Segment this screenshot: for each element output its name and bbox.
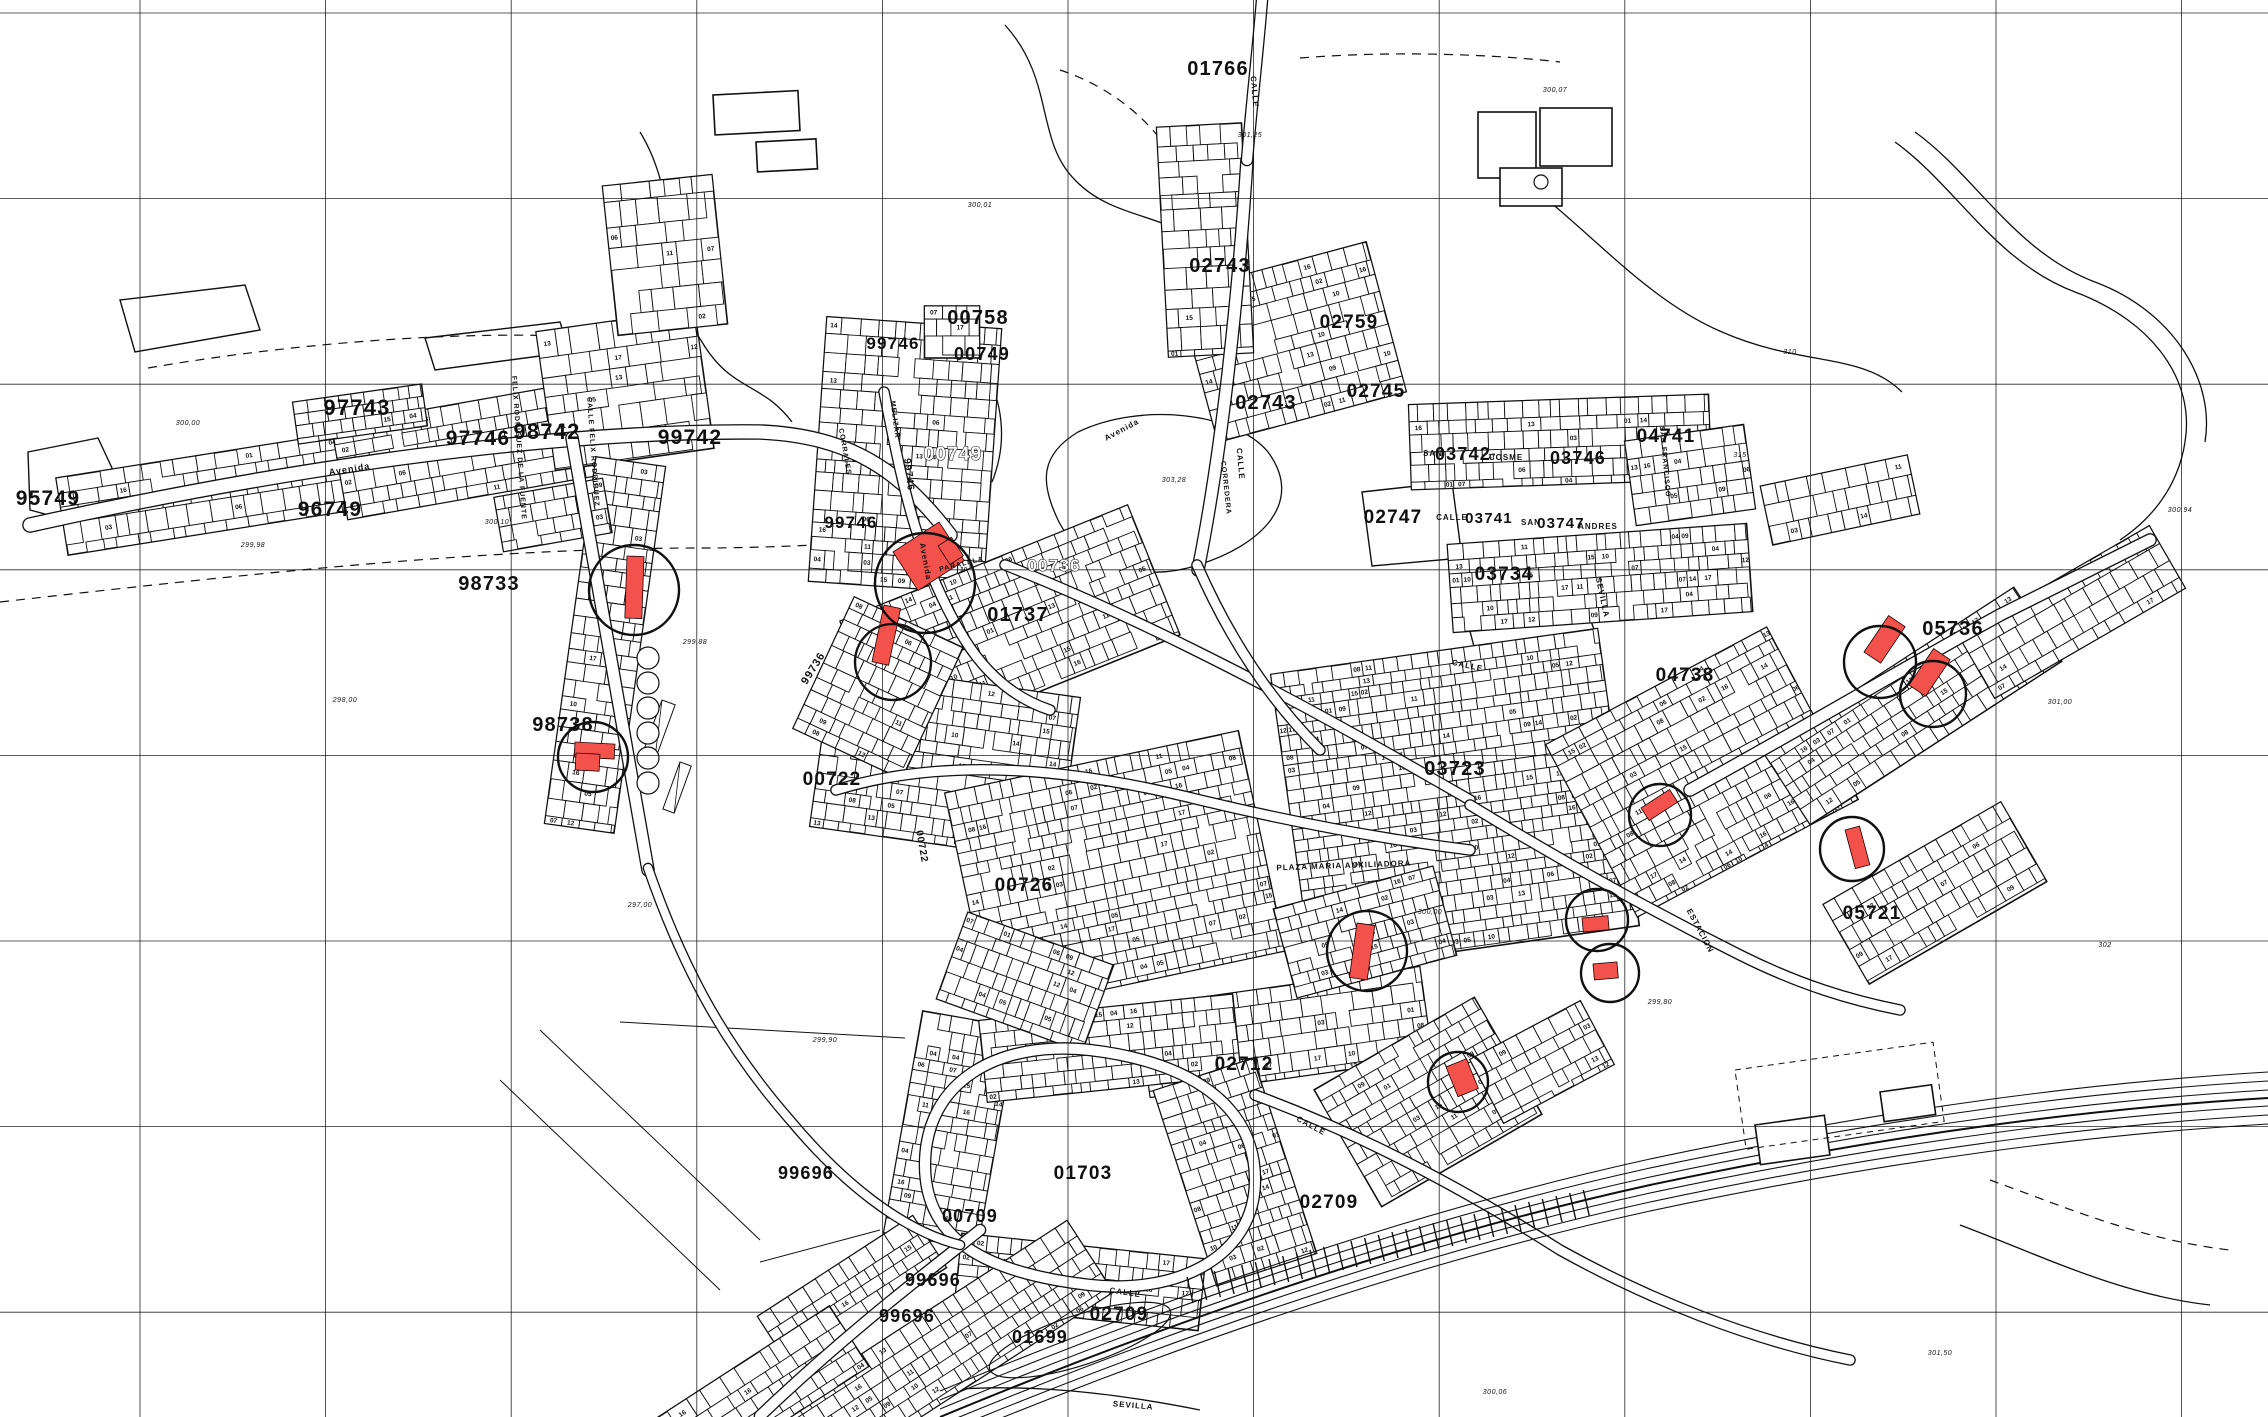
parcel-number: 12 [1439,811,1448,819]
street-label: COSME [1489,453,1523,462]
spot-elevation: 302 [2098,942,2111,949]
block-number-label: 03742 [1435,444,1491,464]
parcel-number: 15 [1587,554,1595,562]
block-number-label: 02712 [1215,1054,1274,1075]
block-number-label: 02743 [1189,255,1251,277]
parcel-number: 02 [989,1093,997,1101]
parcel-number: 04 [1712,545,1720,553]
parcel-number: 12 [1126,1022,1134,1030]
parcel-number: 11 [666,250,674,258]
parcel-number: 17 [1500,618,1508,626]
parcel-number: 04 [1503,877,1512,885]
parcel-number: 14 [1689,576,1697,584]
parcel-number: 13 [915,453,923,461]
parcel-number: 09 [1352,784,1361,792]
block-number-label: 04741 [1637,426,1696,447]
highlighted-parcel [625,556,644,619]
parcel-number: 09 [1718,486,1727,494]
block-number-label: 99696 [879,1306,935,1326]
parcel-number: 10 [1463,576,1471,584]
parcel-number: 12 [1279,727,1288,735]
parcel-number: 12 [1364,810,1373,818]
parcel-number: 04 [1322,803,1331,811]
parcel-number: 13 [1630,464,1639,472]
block-number-label: 02745 [1347,381,1406,402]
parcel-number: 03 [1288,767,1297,775]
parcel-number: 06 [1518,467,1526,474]
block-number-label: 96749 [298,498,362,521]
spot-elevation: 303,28 [1162,477,1186,484]
parcel-number: 17 [1561,585,1569,593]
block-number-label: 00749 [954,344,1010,364]
parcel-number: 11 [1576,583,1584,590]
spot-elevation: 297,00 [627,902,652,909]
parcel-number: 12 [1565,660,1574,668]
parcel-number: 03 [1570,435,1578,442]
parcel-number: 13 [1527,421,1535,428]
block-number-label-outline: 00736 [1027,556,1080,575]
parcel-number: 02 [1360,689,1369,697]
street-label: CALLE [1235,448,1247,480]
parcel-number: 17 [614,354,623,362]
parcel-number: 02 [1570,714,1579,722]
spot-elevation: 301,50 [1928,1350,1952,1357]
block-number-label: 02709 [1090,1304,1149,1325]
spot-elevation: 300,01 [968,202,992,209]
block-number-label: 98742 [513,419,580,444]
block-number-label: 97746 [446,427,510,450]
block-number-label: 01737 [987,604,1049,626]
parcel-number: 05 [887,802,896,810]
spot-elevation: 301,00 [2048,699,2072,706]
street-label: CORREDERA [1219,461,1232,516]
parcel-number: 04 [409,412,418,420]
spot-elevation: 298,00 [332,697,357,704]
parcel-number: 04 [813,556,821,564]
spot-elevation: 299,90 [812,1037,837,1044]
parcel-number: 13 [1518,890,1527,898]
parcel-number: 04 [1164,1050,1172,1058]
parcel-number: 16 [1415,425,1423,432]
block-number-label: 01703 [1054,1163,1113,1184]
parcel-number: 17 [1661,607,1669,615]
parcel-number: 13 [615,374,624,382]
parcel-number: 14 [1534,719,1543,727]
parcel-number: 13 [867,814,876,822]
parcel-number: 14 [1442,732,1451,740]
parcel-number: 07 [549,817,558,825]
parcel-number: 03 [1409,827,1418,835]
highlighted-parcel [1864,616,1905,664]
block-number-label: 00709 [942,1206,998,1226]
street-label: CALLE [1436,513,1468,522]
parcel-number: 16 [1568,804,1577,812]
parcel-number: 13 [1362,677,1371,685]
block-number-label: 00758 [947,307,1009,329]
highlighted-parcel [1593,962,1618,980]
block-number-label: 05721 [1843,903,1902,924]
spot-elevation: 301,25 [1238,132,1262,139]
parcel-number: 03 [863,560,871,568]
block-number-label: 01699 [1012,1327,1068,1347]
parcel-number: 04 [1685,591,1693,599]
parcel-number: 13 [1132,1078,1140,1086]
spot-elevation: 299,98 [240,542,265,549]
spot-elevation: 300,00 [1418,909,1442,916]
parcel-number: 07 [1631,565,1639,573]
parcel-number: 08 [1557,794,1566,802]
parcel-number: 10 [1602,553,1610,561]
block-number-label: 04738 [1656,665,1715,686]
parcel-number: 07 [1679,576,1687,584]
parcel-number: 09 [1590,612,1598,620]
parcel-number: 10 [1487,933,1496,941]
block-number-label: 03741 [1465,510,1513,527]
parcel-number: 16 [1130,1008,1138,1016]
block-number-label-outline: 00749 [924,444,983,465]
parcel-number: 02 [1191,1061,1199,1069]
parcel-number: 11 [1365,664,1373,672]
parcel-number: 06 [1742,466,1751,474]
highlighted-parcel [575,753,600,771]
highlighted-parcel [1845,826,1870,869]
parcel-number: 09 [1681,533,1689,541]
parcel-number: 12 [987,690,996,698]
parcel-number: 06 [610,234,618,242]
parcel-number: 06 [235,503,244,511]
parcel-number: 07 [930,310,938,317]
spot-elevation: 299,80 [1647,999,1672,1006]
parcel-number: 07 [707,245,715,253]
parcel-number: 03 [1486,894,1495,902]
block-number-label: 03747 [1537,515,1585,532]
parcel-number: 12 [1528,616,1536,624]
block-number-label: 99696 [905,1270,961,1290]
parcel-number: 07 [1458,481,1466,488]
spot-elevation: 300,94 [2168,507,2192,514]
parcel-number: 06 [932,419,940,427]
parcel-number: 15 [1525,774,1534,782]
parcel-number: 15 [880,577,888,585]
block-number-label: 03746 [1550,448,1606,468]
block-number-label: 97743 [323,395,390,420]
block-number-label: 02759 [1320,312,1379,333]
urban-blocks: 0104161206030615130202060911061504131712… [56,123,2185,1417]
spot-elevation: 299,88 [682,639,707,646]
parcel-number: 11 [1521,544,1529,551]
parcel-number: 13 [543,340,552,348]
parcel-number: 02 [1471,818,1480,826]
parcel-number: 17 [1314,1055,1323,1063]
parcel-number: 05 [1509,708,1518,716]
block-number-label: 95749 [16,487,80,510]
parcel-number: 17 [1704,574,1712,582]
block-number-label: 05736 [1922,618,1984,640]
parcel-number: 16 [1643,462,1652,470]
block-number-label: 99746 [824,513,877,532]
spot-elevation: 300,00 [176,420,200,427]
parcel-number: 13 [829,377,837,385]
spot-elevation: 310 [1783,349,1796,356]
parcel-number: 10 [951,732,960,740]
cadastral-map-scan: 0104161206030615130202060911061504131712… [0,0,2268,1417]
highlighted-parcel [1582,916,1609,932]
block-number-label: 98738 [532,714,594,736]
parcel-number: 09 [1523,721,1532,729]
spot-elevation: 300,10 [485,519,509,526]
parcel-number: 01 [1407,1006,1416,1014]
railway-tracks [940,1072,2268,1417]
block-number-label: 98733 [458,573,520,595]
parcel-number: 03 [634,535,643,543]
block-number-label: 99696 [778,1163,834,1183]
spot-elevation: 315 [1733,452,1746,459]
parcel-number: 01 [1171,351,1179,358]
block-number-label: 00722 [803,769,862,790]
parcel-number: 04 [1671,533,1679,541]
parcel-number: 07 [896,789,905,797]
parcel-number: 09 [898,578,906,586]
parcel-number: 01 [245,452,254,460]
parcel-number: 14 [1640,417,1648,424]
parcel-number: 09 [1338,705,1347,713]
block-number-label: 00726 [995,875,1054,896]
parcel-number: 02 [698,313,706,321]
parcel-number: 15 [1185,315,1193,322]
parcel-number: 02 [976,1240,984,1248]
parcel-number: 08 [1353,666,1362,674]
block-number-label: 03734 [1475,564,1534,585]
parcel-number: 12 [566,820,575,828]
parcel-number: 13 [813,820,822,828]
spot-elevation: 300,07 [1543,87,1568,94]
parcel-number: 12 [690,343,699,351]
block-number-label: 02747 [1364,507,1423,528]
parcel-number: 15 [1351,690,1360,698]
parcel-number: 14 [1012,740,1021,748]
parcel-number: 02 [1585,853,1594,861]
parcel-number: 01 [1446,482,1454,489]
map-canvas: 0104161206030615130202060911061504131712… [0,0,2268,1417]
parcel-number: 03 [640,468,649,476]
parcel-number: 01 [1452,577,1460,585]
parcel-number: 11 [864,544,872,551]
parcel-number: 05 [1552,662,1561,670]
block-number-label: 02743 [1235,392,1297,414]
block-number-label: 03723 [1424,758,1486,780]
parcel-number: 11 [1410,695,1418,703]
roads [30,0,2150,1416]
parcel-number: 10 [1486,605,1494,613]
parcel-number: 06 [1546,871,1555,879]
parcel-number: 10 [569,701,578,709]
parcel-number: 15 [1042,728,1051,736]
block-number-label: 99742 [658,426,722,449]
spot-elevation: 300,06 [1483,1389,1507,1396]
block-number-label: 99746 [866,334,919,353]
parcel-number: 10 [1348,1050,1357,1058]
block-number-label: 02709 [1300,1192,1359,1213]
parcel-number: 10 [1526,654,1535,662]
parcel-number: 03 [1317,1019,1326,1027]
parcel-number: 12 [1741,557,1749,565]
parcel-number: 04 [1110,1010,1118,1018]
block-number-label: 01766 [1187,58,1249,80]
parcel-number: 03 [105,524,114,532]
parcel-number: 04 [1565,477,1573,484]
parcel-number: 16 [119,487,128,495]
parcel-number: 17 [1162,1260,1170,1268]
parcel-number: 17 [589,655,598,663]
parcel-number: 04 [1674,458,1683,466]
parcel-number: 08 [848,797,857,805]
parcel-number: 14 [830,322,838,330]
parcel-number: 12 [1507,853,1516,861]
